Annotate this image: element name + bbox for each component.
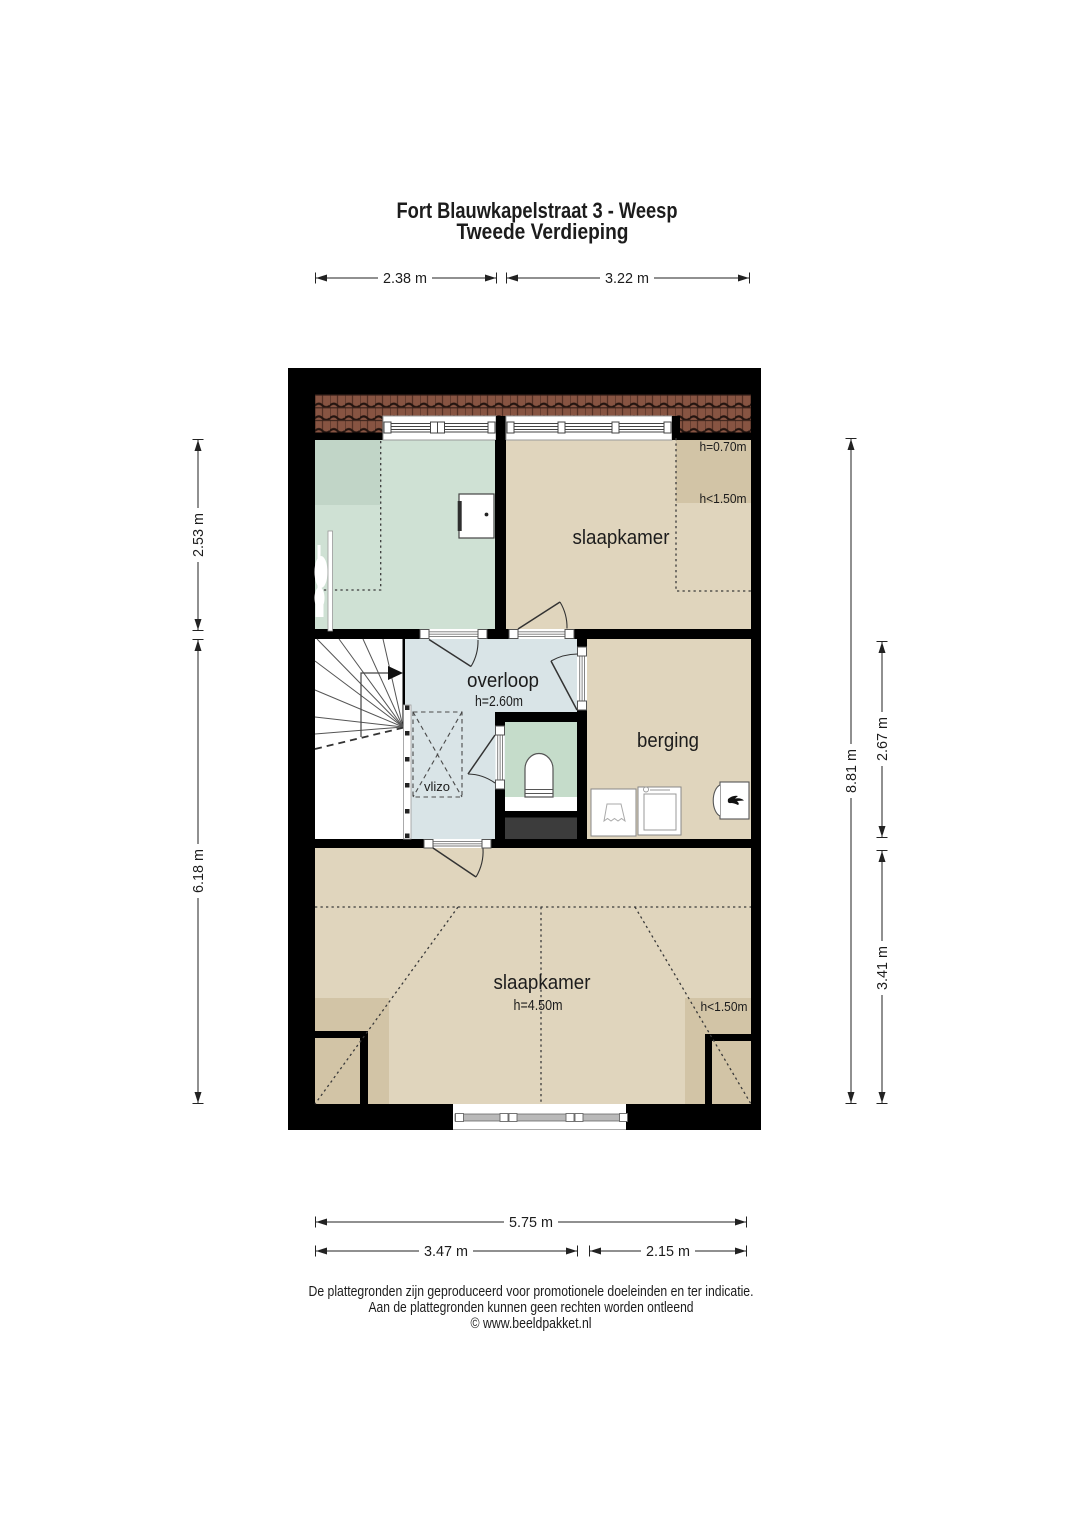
svg-text:2.53 m: 2.53 m [191, 513, 207, 557]
svg-text:8.81 m: 8.81 m [844, 749, 860, 793]
svg-text:Tweede Verdieping: Tweede Verdieping [457, 219, 629, 244]
svg-text:overloop: overloop [467, 669, 539, 692]
svg-text:2.15 m: 2.15 m [646, 1244, 690, 1260]
svg-text:Aan de plattegronden kunnen ge: Aan de plattegronden kunnen geen rechten… [369, 1299, 694, 1316]
svg-text:6.18 m: 6.18 m [191, 849, 207, 893]
svg-text:3.22 m: 3.22 m [605, 271, 649, 287]
svg-text:vlizo: vlizo [424, 780, 450, 794]
svg-text:slaapkamer: slaapkamer [494, 971, 591, 994]
svg-text:3.47 m: 3.47 m [424, 1244, 468, 1260]
svg-text:3.41 m: 3.41 m [875, 946, 891, 990]
svg-text:2.38 m: 2.38 m [383, 271, 427, 287]
svg-text:berging: berging [637, 729, 699, 752]
svg-text:h<1.50m: h<1.50m [700, 491, 747, 506]
svg-text:De plattegronden zijn geproduc: De plattegronden zijn geproduceerd voor … [309, 1283, 754, 1300]
svg-text:2.67 m: 2.67 m [875, 717, 891, 761]
svg-text:© www.beeldpakket.nl: © www.beeldpakket.nl [471, 1315, 592, 1332]
svg-text:h=0.70m: h=0.70m [700, 439, 747, 454]
svg-text:slaapkamer: slaapkamer [573, 526, 670, 549]
svg-text:h=4.50m: h=4.50m [514, 998, 563, 1014]
svg-text:h<1.50m: h<1.50m [701, 999, 748, 1014]
svg-text:h=2.60m: h=2.60m [475, 694, 523, 710]
svg-text:5.75 m: 5.75 m [509, 1215, 553, 1231]
